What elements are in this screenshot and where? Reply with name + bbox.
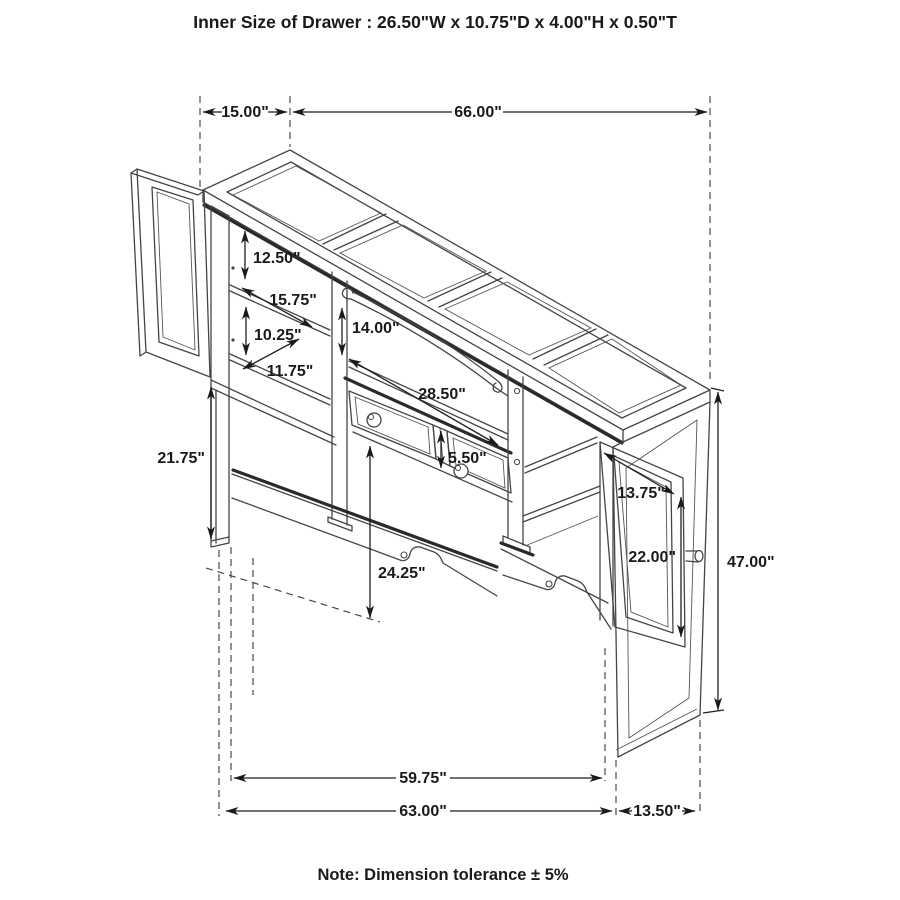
dim-bottom-outer-width-label: 63.00" xyxy=(399,803,447,820)
right-end-panel xyxy=(613,402,710,757)
scallop-curl xyxy=(401,552,407,558)
dim-bottom-inner-width-label: 59.75" xyxy=(399,770,447,787)
dim-upper-shelf: 15.75" xyxy=(242,288,317,327)
dim-bottom-inner-width: 59.75" xyxy=(234,770,602,787)
door-knob xyxy=(695,551,703,562)
dimensions: 15.00" 66.00" 12.50" 15.75" 10.25" 11.75… xyxy=(157,104,774,820)
dim-center-opening: 14.00" xyxy=(342,308,400,355)
dim-left-leg-label: 21.75" xyxy=(157,450,205,467)
hinge-mark xyxy=(514,388,519,393)
hutch-drawing: Inner Size of Drawer : 26.50"W x 10.75"D… xyxy=(0,0,900,900)
dim-upper-left-opening: 12.50" xyxy=(245,231,301,279)
dim-center-clearance-label: 24.25" xyxy=(378,565,426,582)
scallop-curl xyxy=(546,581,552,587)
dim-side-depth: 13.50" xyxy=(619,803,695,820)
dim-side-depth-label: 13.50" xyxy=(633,803,681,820)
hutch-dimension-drawing-page: Inner Size of Drawer : 26.50"W x 10.75"D… xyxy=(0,0,900,900)
dim-bottom-outer-width: 63.00" xyxy=(226,803,612,820)
dim-top-depth-label: 15.00" xyxy=(221,104,269,121)
drawing-title: Inner Size of Drawer : 26.50"W x 10.75"D… xyxy=(193,12,677,32)
dim-drawer-height-label: 5.50" xyxy=(448,450,487,467)
hinge-dot xyxy=(231,266,234,269)
dim-left-leg: 21.75" xyxy=(157,387,211,539)
dim-overall-height: 47.00" xyxy=(703,388,775,713)
dim-top-width-label: 66.00" xyxy=(454,104,502,121)
dim-right-door-width-label: 13.75" xyxy=(617,485,665,502)
left-open-door xyxy=(131,169,210,377)
dim-drawer-span-label: 28.50" xyxy=(418,386,466,403)
dim-right-door-height-label: 22.00" xyxy=(628,549,676,566)
left-leg xyxy=(211,388,229,547)
dim-top-depth: 15.00" xyxy=(203,104,287,121)
dim-lower-left-opening: 10.25" xyxy=(246,307,302,355)
hinge-mark xyxy=(514,459,519,464)
dim-top-width: 66.00" xyxy=(293,104,707,121)
tolerance-note: Note: Dimension tolerance ± 5% xyxy=(317,866,568,884)
right-cabinet xyxy=(501,370,600,555)
hinge-dot xyxy=(231,338,234,341)
dim-overall-height-label: 47.00" xyxy=(727,554,775,571)
dim-center-opening-label: 14.00" xyxy=(352,320,400,337)
dim-upper-shelf-label: 15.75" xyxy=(269,292,317,309)
bottom-rail xyxy=(232,470,611,629)
dim-upper-left-opening-label: 12.50" xyxy=(253,250,301,267)
dim-lower-shelf-label: 11.75" xyxy=(267,363,314,380)
dim-lower-shelf: 11.75" xyxy=(243,339,313,380)
